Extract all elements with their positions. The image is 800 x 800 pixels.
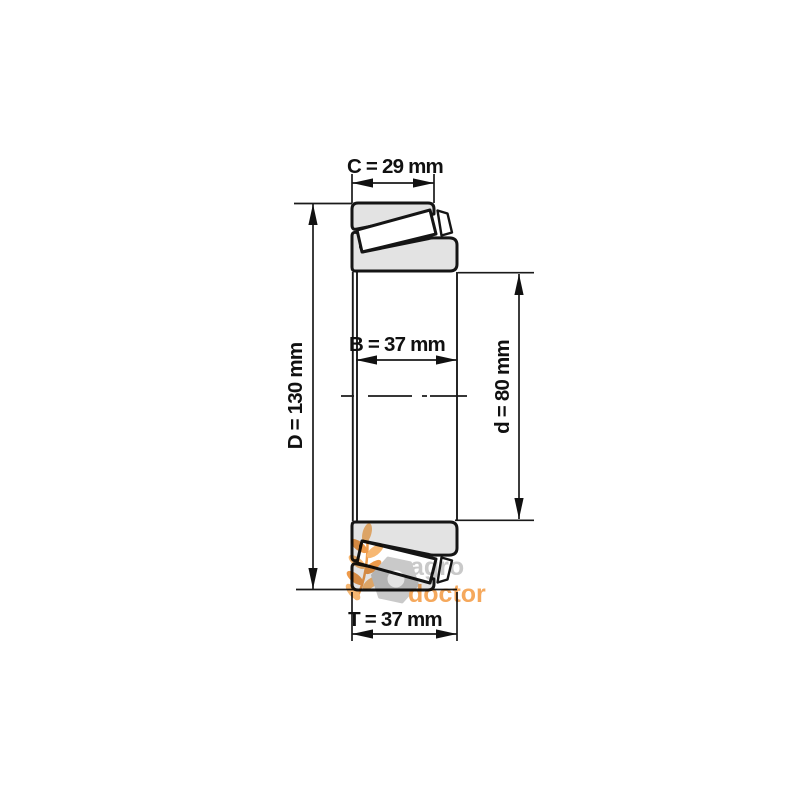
- arrow-d-bottom: [514, 498, 523, 519]
- cage-fragment: [438, 211, 453, 236]
- arrow-D-bottom: [308, 568, 317, 589]
- bearing-section-top: [352, 203, 457, 271]
- arrow-C-left: [352, 178, 373, 187]
- arrow-d-top: [514, 274, 523, 295]
- watermark-word-doctor: doctor: [408, 580, 486, 608]
- drawing-canvas: C = 29 mm D = 130 mm B = 37 mm d = 80 mm…: [0, 0, 800, 800]
- label-dimension-d: d = 80 mm: [491, 340, 514, 434]
- label-dimension-B: B = 37 mm: [349, 333, 445, 356]
- watermark-word-agro: agro: [410, 553, 464, 581]
- bearing-diagram: C = 29 mm D = 130 mm B = 37 mm d = 80 mm…: [0, 0, 800, 800]
- label-dimension-C: C = 29 mm: [347, 155, 443, 178]
- arrow-B-right: [436, 355, 457, 364]
- label-dimension-T: T = 37 mm: [348, 608, 442, 631]
- label-dimension-D: D = 130 mm: [284, 343, 307, 450]
- arrow-C-right: [413, 178, 434, 187]
- arrow-B-left: [356, 355, 377, 364]
- arrow-D-top: [308, 204, 317, 225]
